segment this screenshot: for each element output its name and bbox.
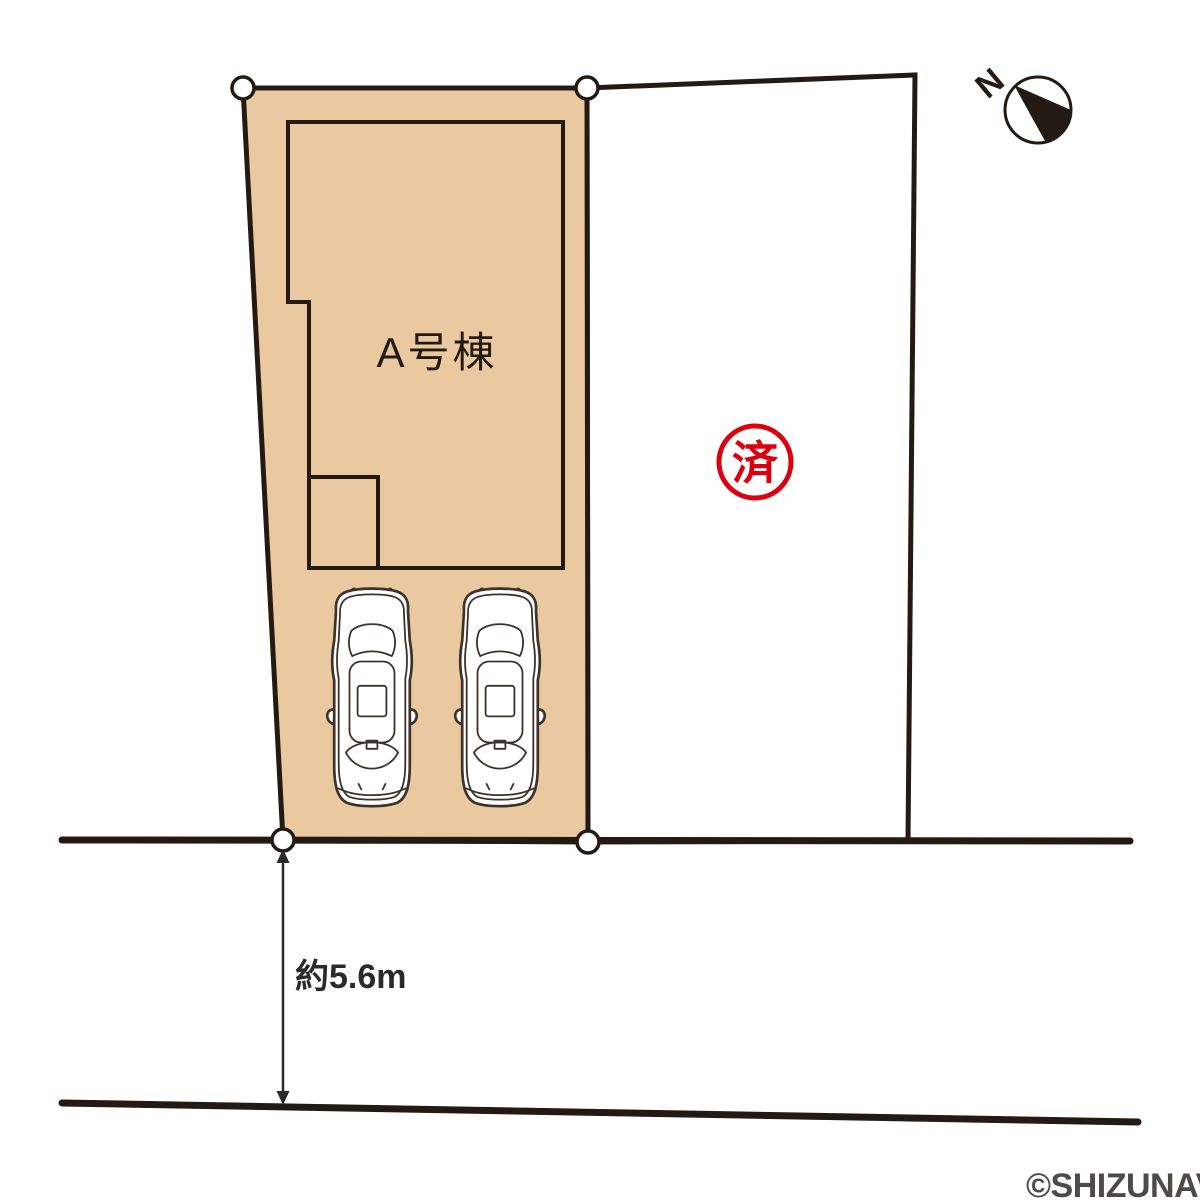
dimension-annotation: 約5.6m	[277, 849, 407, 1105]
copyright-watermark: ©SHIZUNAVI	[1026, 1167, 1200, 1200]
parked-car-1	[327, 588, 417, 807]
dimension-arrow-down-icon	[277, 1091, 290, 1105]
road-edge-line-lower	[62, 1103, 1138, 1122]
boundary-vertex-marker	[232, 77, 254, 99]
compass-north-label: N	[968, 61, 1011, 106]
building-a-label: A号棟	[376, 329, 497, 376]
site-plan-canvas: A号棟 約5.6m 済 N ©SHIZUNAVI	[0, 0, 1200, 1200]
boundary-vertex-marker	[576, 77, 598, 99]
boundary-vertex-marker	[577, 831, 599, 853]
parked-car-2	[455, 588, 545, 807]
sold-stamp-label: 済	[732, 437, 779, 489]
boundary-vertex-marker	[272, 829, 294, 851]
site-plan-svg: A号棟 約5.6m 済 N ©SHIZUNAVI	[0, 0, 1200, 1200]
dimension-label: 約5.6m	[295, 958, 407, 996]
north-compass-icon: N	[968, 61, 1071, 143]
